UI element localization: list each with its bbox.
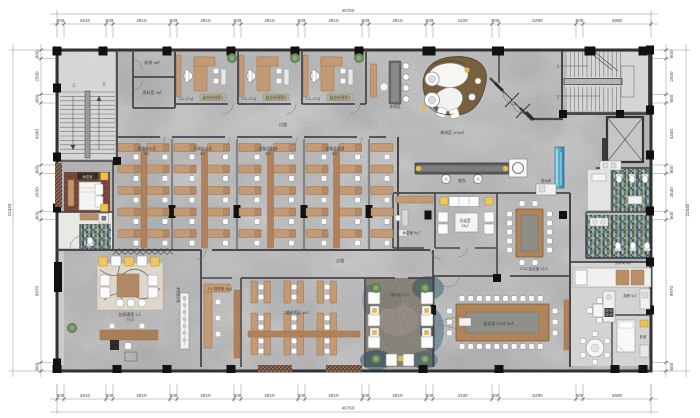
svg-text:500: 500 xyxy=(106,18,114,23)
svg-text:2630: 2630 xyxy=(35,187,40,198)
svg-text:500: 500 xyxy=(170,18,178,23)
svg-text:40760: 40760 xyxy=(342,406,355,411)
svg-text:5290: 5290 xyxy=(532,18,543,23)
svg-text:600: 600 xyxy=(35,165,40,173)
svg-text:3910: 3910 xyxy=(328,18,339,23)
svg-text:休息室 9㎡: 休息室 9㎡ xyxy=(402,230,420,235)
svg-text:副总经理室1: 副总经理室1 xyxy=(202,95,223,100)
svg-text:3910: 3910 xyxy=(136,18,147,23)
svg-text:洽谈室: 洽谈室 xyxy=(459,218,471,223)
svg-text:600: 600 xyxy=(669,165,674,173)
svg-text:营销办公区: 营销办公区 xyxy=(138,146,157,151)
svg-text:500: 500 xyxy=(362,393,370,398)
svg-text:下: 下 xyxy=(556,95,560,100)
svg-text:茶水间: 茶水间 xyxy=(541,178,552,183)
svg-text:500: 500 xyxy=(492,393,500,398)
svg-text:600: 600 xyxy=(669,94,674,102)
svg-text:休闲区 100㎡: 休闲区 100㎡ xyxy=(440,129,464,135)
svg-text:2500: 2500 xyxy=(35,71,40,82)
svg-text:洗手间 5㎡: 洗手间 5㎡ xyxy=(615,260,632,265)
svg-text:3910: 3910 xyxy=(200,18,211,23)
svg-text:4100: 4100 xyxy=(457,393,468,398)
svg-text:总经理室 1人: 总经理室 1人 xyxy=(118,311,141,317)
svg-text:4340: 4340 xyxy=(669,128,674,139)
svg-text:2910: 2910 xyxy=(80,18,91,23)
svg-text:500: 500 xyxy=(426,393,434,398)
svg-text:9970: 9970 xyxy=(35,286,40,297)
svg-text:3910: 3910 xyxy=(264,393,275,398)
svg-text:500: 500 xyxy=(576,393,584,398)
svg-text:23㎡: 23㎡ xyxy=(461,223,469,228)
svg-text:设备内勤部: 设备内勤部 xyxy=(259,146,278,151)
svg-text:卧室: 卧室 xyxy=(640,334,647,339)
svg-text:8人: 8人 xyxy=(265,151,271,156)
svg-text:500: 500 xyxy=(298,18,306,23)
svg-text:设备外勤部: 设备外勤部 xyxy=(326,146,345,151)
svg-text:1人,17㎡: 1人,17㎡ xyxy=(179,96,194,101)
svg-text:4100: 4100 xyxy=(457,18,468,23)
svg-text:下: 下 xyxy=(102,82,106,87)
svg-text:4340: 4340 xyxy=(35,128,40,139)
svg-text:荣誉展示柜: 荣誉展示柜 xyxy=(176,287,181,304)
svg-text:资料室 5㎡: 资料室 5㎡ xyxy=(142,89,161,95)
svg-text:前台: 前台 xyxy=(458,178,466,183)
svg-text:3910: 3910 xyxy=(264,18,275,23)
svg-text:副总经理室3: 副总经理室3 xyxy=(329,95,350,100)
svg-text:8人: 8人 xyxy=(144,151,150,156)
svg-text:600: 600 xyxy=(35,211,40,219)
svg-text:9970: 9970 xyxy=(669,286,674,297)
svg-text:3910: 3910 xyxy=(392,393,403,398)
svg-text:8人: 8人 xyxy=(332,151,338,156)
svg-text:500: 500 xyxy=(234,393,242,398)
svg-text:二楼研发区 16人: 二楼研发区 16人 xyxy=(282,310,310,315)
svg-text:500: 500 xyxy=(576,18,584,23)
svg-text:600: 600 xyxy=(35,362,40,370)
svg-text:上: 上 xyxy=(72,81,76,87)
svg-text:500: 500 xyxy=(57,18,65,23)
svg-text:500: 500 xyxy=(106,393,114,398)
svg-text:40760: 40760 xyxy=(342,8,355,13)
svg-text:2500: 2500 xyxy=(669,71,674,82)
svg-text:3910: 3910 xyxy=(392,18,403,23)
svg-text:厨房 9㎡: 厨房 9㎡ xyxy=(624,293,638,298)
svg-text:水吧区: 水吧区 xyxy=(389,104,401,109)
svg-text:休息室: 休息室 xyxy=(82,174,93,179)
svg-text:5290: 5290 xyxy=(532,393,543,398)
svg-text:3910: 3910 xyxy=(200,393,211,398)
svg-text:过道: 过道 xyxy=(279,121,287,127)
svg-text:1人,17㎡: 1人,17㎡ xyxy=(242,96,257,101)
svg-text:77㎡: 77㎡ xyxy=(126,317,134,322)
svg-text:1人 财务室 16㎡: 1人 财务室 16㎡ xyxy=(208,286,233,291)
svg-text:500: 500 xyxy=(298,393,306,398)
svg-text:3910: 3910 xyxy=(328,393,339,398)
svg-text:1人,17㎡: 1人,17㎡ xyxy=(306,96,321,101)
svg-text:500: 500 xyxy=(426,18,434,23)
svg-text:8人: 8人 xyxy=(200,151,206,156)
svg-text:行政办公区: 行政办公区 xyxy=(194,146,213,151)
svg-text:机房 4㎡: 机房 4㎡ xyxy=(144,59,159,65)
svg-text:接待室 27㎡: 接待室 27㎡ xyxy=(390,292,410,297)
svg-text:600: 600 xyxy=(669,362,674,370)
svg-text:会议室 27㎡ 16人: 会议室 27㎡ 16人 xyxy=(483,320,514,326)
svg-text:600: 600 xyxy=(35,94,40,102)
svg-text:27㎡ 会议室 12人: 27㎡ 会议室 12人 xyxy=(520,266,548,271)
svg-text:4680: 4680 xyxy=(612,393,623,398)
svg-text:600: 600 xyxy=(35,50,40,58)
svg-text:4680: 4680 xyxy=(612,18,623,23)
svg-text:上: 上 xyxy=(556,62,560,68)
svg-text:600: 600 xyxy=(669,50,674,58)
svg-text:22440: 22440 xyxy=(7,203,12,216)
svg-text:500: 500 xyxy=(170,393,178,398)
svg-text:500: 500 xyxy=(362,18,370,23)
svg-text:500: 500 xyxy=(234,18,242,23)
svg-text:2630: 2630 xyxy=(669,187,674,198)
svg-text:500: 500 xyxy=(57,393,65,398)
svg-text:600: 600 xyxy=(669,211,674,219)
svg-text:2910: 2910 xyxy=(80,393,91,398)
svg-text:22440: 22440 xyxy=(685,203,690,216)
svg-text:副总经理室2: 副总经理室2 xyxy=(265,95,286,100)
svg-text:3910: 3910 xyxy=(136,393,147,398)
svg-text:500: 500 xyxy=(492,18,500,23)
svg-text:过道: 过道 xyxy=(336,257,344,263)
